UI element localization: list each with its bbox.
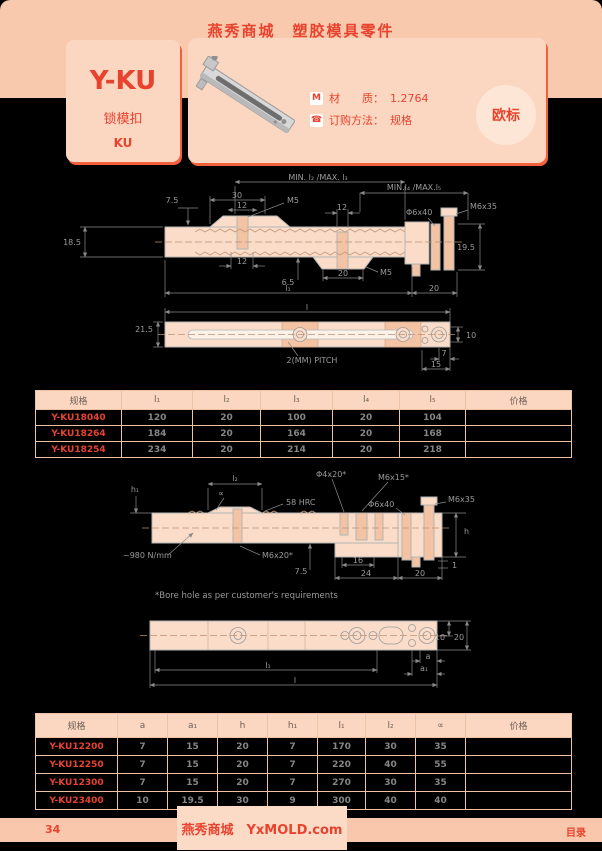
spec-table-2: 规格 a a₁ h h₁ l₁ l₂ ∝ 价格 Y-KU12200 7 15 2… [35,713,572,810]
product-name-cn: 锁模扣 [66,108,180,127]
dim-label: 15 [431,360,441,369]
dim-label: 2(MM) PITCH [287,356,338,365]
dim-label: 10 [466,331,476,340]
value-cell: 7 [268,774,318,792]
value-cell: 20 [333,410,400,426]
col-header: l₂ [366,714,416,738]
value-cell: 170 [318,738,366,756]
value-cell: 120 [122,410,193,426]
col-header: ∝ [416,714,466,738]
value-cell: 30 [366,738,416,756]
col-header: l₃ [261,391,333,410]
value-cell: 220 [318,756,366,774]
dim-label: 58 HRC [286,498,316,507]
value-cell: 184 [122,426,193,442]
dim-label: 16 [353,556,363,565]
value-cell: 234 [122,442,193,458]
price-cell [466,410,572,426]
value-cell: 20 [333,426,400,442]
value-cell: 10 [118,792,168,810]
dim-label: Φ6x40 [406,208,432,217]
dim-label: 30 [232,191,242,200]
dim-label: l₂ [232,474,237,483]
table-row: Y-KU18040 120 20 100 20 104 [36,410,572,426]
col-header: l₁ [122,391,193,410]
page-number: 34 [45,823,60,836]
value-cell: 104 [400,410,466,426]
value-cell: 164 [261,426,333,442]
dim-label: h₁ [131,485,139,494]
price-cell [466,792,572,810]
dim-label: 7.5 [295,567,308,576]
dim-label: 20 [429,284,439,293]
value-cell: 30 [366,774,416,792]
dim-label: 12 [237,257,247,266]
dim-label: 12 [237,201,247,210]
value-cell: 20 [193,442,261,458]
part-bottom-view [158,322,458,347]
value-cell: 20 [218,774,268,792]
value-cell: 7 [268,756,318,774]
dim-label: M6x35 [448,495,475,504]
dim-label: MIN.l₄ /MAX.l₅ [387,183,441,192]
dim-label: 20 [454,633,464,642]
col-header: 规格 [36,714,118,738]
latch-side-view [152,497,442,567]
catalog-page: 燕秀商城 塑胶模具零件 Y-KU 锁模扣 KU M 材 质： 1.2764 [0,0,602,851]
dim-label: 20 [338,269,348,278]
price-cell [466,442,572,458]
price-cell [466,756,572,774]
dim-label: 7.5 [166,196,179,205]
dim-label: M6x20* [262,551,293,560]
value-cell: 20 [218,756,268,774]
price-cell [466,774,572,792]
value-cell: 55 [416,756,466,774]
col-header: l₅ [400,391,466,410]
material-value: 1.2764 [390,92,429,105]
info-card: M 材 质： 1.2764 ☎ 订购方法： 规格 欧标 [188,38,546,163]
product-series: Y-KU [66,66,180,96]
material-row: M 材 质： 1.2764 [310,90,429,106]
toc-link[interactable]: 目录 [566,824,586,839]
spec-cell: Y-KU12250 [36,756,118,774]
order-row: ☎ 订购方法： 规格 [310,112,412,128]
value-cell: 7 [268,738,318,756]
col-header: 规格 [36,391,122,410]
dim-label: 21.5 [135,325,153,334]
material-icon: M [310,92,323,105]
col-header: a₁ [168,714,218,738]
value-cell: 218 [400,442,466,458]
drawing-note: *Bore hole as per customer's requirement… [155,591,339,601]
order-value: 规格 [390,112,412,128]
spec-cell: Y-KU18264 [36,426,122,442]
value-cell: 20 [193,410,261,426]
col-header: a [118,714,168,738]
table-row: Y-KU12250 7 15 20 7 220 40 55 [36,756,572,774]
value-cell: 40 [366,756,416,774]
spec-cell: Y-KU12300 [36,774,118,792]
dim-label: ~980 N/mm [123,551,172,560]
col-header: l₁ [318,714,366,738]
table-header-row: 规格 a a₁ h h₁ l₁ l₂ ∝ 价格 [36,714,572,738]
col-header: 价格 [466,714,572,738]
col-header: l₄ [333,391,400,410]
value-cell: 20 [193,426,261,442]
value-cell: 35 [416,774,466,792]
technical-drawing-2: h₁ l₂ ∝ 58 HRC Φ4x20* M6x15* Φ6x40 M6x35… [90,460,540,705]
value-cell: 40 [416,792,466,810]
spec-cell: Y-KU23400 [36,792,118,810]
product-code: KU [66,136,180,150]
price-cell [466,738,572,756]
price-cell [466,426,572,442]
dim-label: 20 [415,569,425,578]
table-row: Y-KU12300 7 15 20 7 270 30 35 [36,774,572,792]
value-cell: 20 [218,738,268,756]
footer-brand-link[interactable]: 燕秀商城 YxMOLD.com [182,819,343,838]
value-cell: 270 [318,774,366,792]
product-image [196,56,306,151]
order-label: 订购方法： [329,112,384,128]
col-header: h [218,714,268,738]
value-cell: 40 [366,792,416,810]
spec-cell: Y-KU18254 [36,442,122,458]
dim-label: l [294,676,296,685]
table-row: Y-KU18264 184 20 164 20 168 [36,426,572,442]
material-label: 材 质： [329,90,384,106]
spec-cell: Y-KU18040 [36,410,122,426]
dim-label: M6x15* [378,473,409,482]
value-cell: 214 [261,442,333,458]
dim-label: l [306,303,308,312]
dim-label: M5 [380,268,392,277]
value-cell: 7 [118,738,168,756]
table-row: Y-KU12200 7 15 20 7 170 30 35 [36,738,572,756]
dim-label: 10 [435,633,445,642]
dim-label: h [464,527,469,536]
product-card: Y-KU 锁模扣 KU [66,40,180,162]
dim-label: ∝ [218,489,224,498]
value-cell: 20 [333,442,400,458]
value-cell: 35 [416,738,466,756]
dim-label: M6x35 [470,202,497,211]
spec-cell: Y-KU12200 [36,738,118,756]
dim-label: 19.5 [457,243,475,252]
dim-label: l₁ [285,284,290,293]
standard-badge: 欧标 [476,85,536,145]
dim-label: 18.5 [63,238,81,247]
latch-bottom-view [140,621,448,650]
dim-label: M5 [287,196,299,205]
spec-table-1: 规格 l₁ l₂ l₃ l₄ l₅ 价格 Y-KU18040 120 20 10… [35,390,572,458]
dim-label: a [426,652,431,661]
technical-drawing-1: MIN. l₂ /MAX. l₃ 30 12 M5 7.5 MIN.l₄ /MA… [60,172,540,385]
value-cell: 15 [168,756,218,774]
phone-icon: ☎ [310,114,323,127]
dim-label: MIN. l₂ /MAX. l₃ [288,173,347,182]
dim-label: l₁ [265,661,270,670]
col-header: h₁ [268,714,318,738]
dim-label: 12 [337,203,347,212]
value-cell: 7 [118,756,168,774]
value-cell: 15 [168,774,218,792]
col-header: 价格 [466,391,572,410]
dim-label: 7 [441,349,446,358]
value-cell: 100 [261,410,333,426]
dim-label: Φ4x20* [316,470,346,479]
dim-label: a₁ [420,664,428,673]
value-cell: 168 [400,426,466,442]
footer-brand-box: 燕秀商城 YxMOLD.com [177,806,347,850]
table-header-row: 规格 l₁ l₂ l₃ l₄ l₅ 价格 [36,391,572,410]
value-cell: 7 [118,774,168,792]
dim-label: Φ6x40 [368,500,394,509]
col-header: l₂ [193,391,261,410]
table-row: Y-KU18254 234 20 214 20 218 [36,442,572,458]
dim-label: 24 [361,569,371,578]
dim-label: 1 [452,561,457,570]
value-cell: 15 [168,738,218,756]
